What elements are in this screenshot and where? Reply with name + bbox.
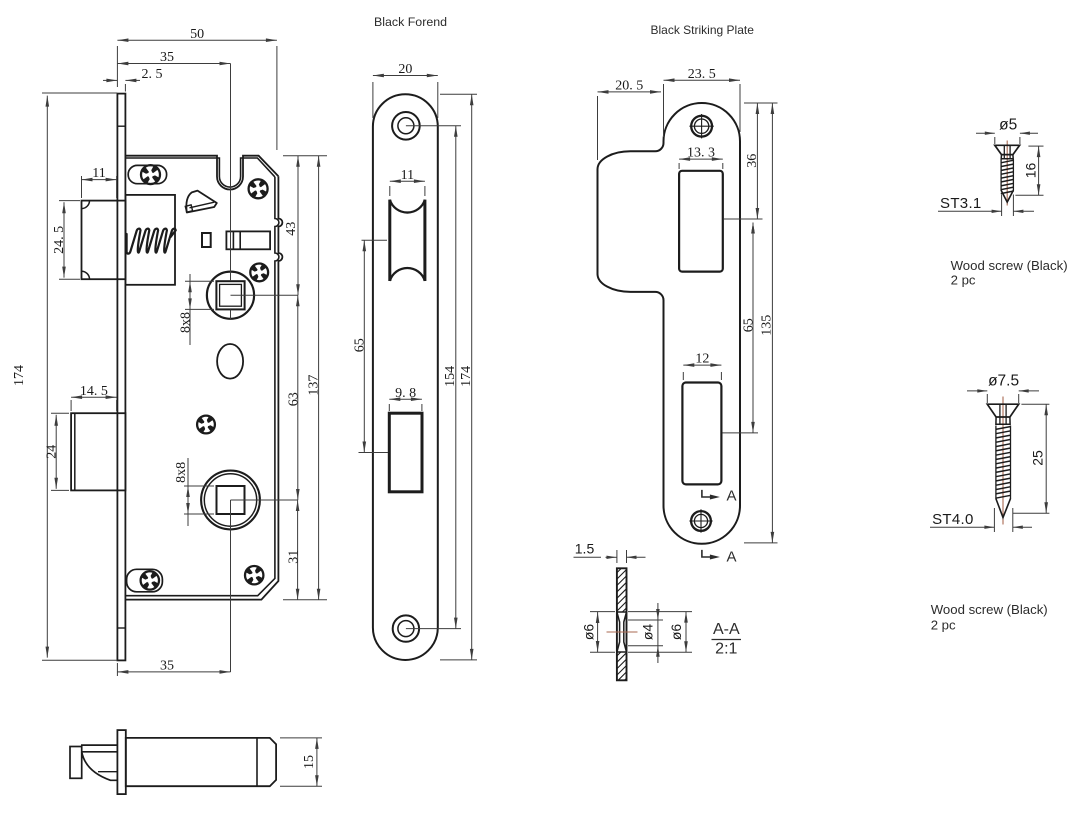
svg-text:24: 24 (45, 445, 60, 459)
svg-text:Black Forend: Black Forend (374, 15, 447, 29)
svg-text:135: 135 (759, 315, 774, 336)
svg-text:174: 174 (459, 366, 474, 387)
svg-text:31: 31 (287, 550, 302, 564)
svg-text:25: 25 (1029, 450, 1045, 466)
svg-text:A: A (727, 549, 737, 566)
svg-text:ST3.1: ST3.1 (940, 195, 982, 212)
svg-text:35: 35 (160, 50, 174, 65)
svg-text:ø5: ø5 (999, 117, 1017, 134)
svg-text:174: 174 (12, 365, 27, 386)
svg-text:ø6: ø6 (668, 624, 684, 641)
svg-text:8x8: 8x8 (174, 462, 189, 483)
svg-text:Wood screw (Black): Wood screw (Black) (951, 258, 1068, 273)
svg-text:11: 11 (92, 166, 105, 181)
svg-text:1.5: 1.5 (575, 541, 595, 557)
svg-text:A: A (727, 488, 737, 505)
svg-text:ø4: ø4 (640, 624, 656, 641)
svg-text:35: 35 (160, 659, 174, 674)
svg-text:8x8: 8x8 (178, 312, 193, 333)
svg-text:50: 50 (190, 27, 204, 42)
svg-text:63: 63 (287, 392, 302, 406)
svg-text:ST4.0: ST4.0 (932, 511, 974, 528)
svg-text:16: 16 (1023, 163, 1039, 179)
svg-text:15: 15 (302, 755, 317, 769)
svg-text:137: 137 (306, 375, 321, 396)
svg-text:2. 5: 2. 5 (142, 67, 163, 82)
svg-text:65: 65 (352, 338, 367, 352)
svg-text:43: 43 (284, 222, 299, 236)
svg-text:36: 36 (745, 154, 760, 168)
svg-text:Black Striking Plate: Black Striking Plate (651, 23, 755, 37)
svg-text:20. 5: 20. 5 (615, 79, 643, 94)
svg-text:Wood screw (Black): Wood screw (Black) (931, 602, 1048, 617)
svg-text:14. 5: 14. 5 (80, 384, 108, 399)
svg-text:2 pc: 2 pc (951, 273, 976, 288)
svg-text:23. 5: 23. 5 (688, 67, 716, 82)
svg-text:2:1: 2:1 (715, 640, 737, 657)
svg-text:13. 3: 13. 3 (687, 146, 715, 161)
svg-text:ø7.5: ø7.5 (988, 373, 1019, 390)
svg-text:ø6: ø6 (580, 624, 596, 641)
svg-text:A-A: A-A (713, 621, 740, 638)
svg-text:9. 8: 9. 8 (395, 386, 416, 401)
svg-text:20: 20 (398, 62, 412, 77)
svg-text:11: 11 (401, 168, 414, 183)
svg-text:2 pc: 2 pc (931, 618, 956, 633)
svg-text:154: 154 (443, 366, 458, 387)
svg-text:12: 12 (695, 352, 709, 367)
svg-text:65: 65 (742, 318, 757, 332)
svg-text:24. 5: 24. 5 (52, 226, 67, 254)
